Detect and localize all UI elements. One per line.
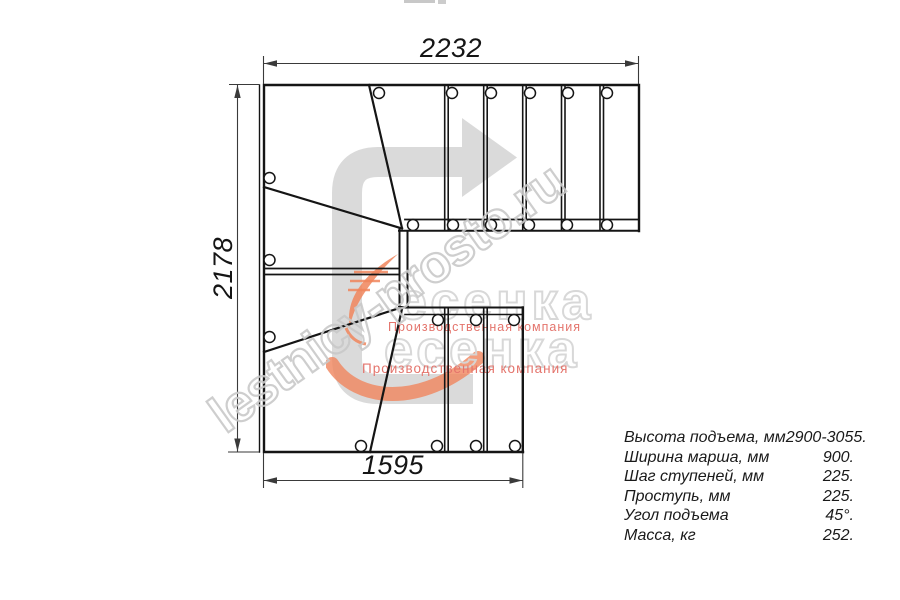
spec-label: Масса, кг	[624, 526, 696, 546]
spec-value: 900.	[823, 448, 854, 468]
spec-value: 225.	[823, 467, 854, 487]
staircase-drawing-page: есенка Производственная компания есенка …	[0, 0, 900, 600]
spec-row: Масса, кг 252.	[624, 526, 854, 546]
spec-value: 2900-3055.	[786, 428, 867, 448]
spec-value: 252.	[823, 526, 854, 546]
spec-row: Проступь, мм 225.	[624, 487, 854, 507]
spec-value: 225.	[823, 487, 854, 507]
spec-row: Ширина марша, мм 900.	[624, 448, 854, 468]
spec-row: Шаг ступеней, мм 225.	[624, 467, 854, 487]
spec-row: Высота подъема, мм 2900-3055.	[624, 428, 854, 448]
spec-label: Высота подъема, мм	[624, 428, 786, 448]
dimension-label-left: 2178	[208, 208, 238, 328]
spec-label: Шаг ступеней, мм	[624, 467, 764, 487]
spec-label: Ширина марша, мм	[624, 448, 769, 468]
spec-value: 45°.	[825, 506, 854, 526]
dimension-label-top: 2232	[351, 33, 551, 63]
spec-table: Высота подъема, мм 2900-3055. Ширина мар…	[624, 428, 854, 545]
spec-row: Угол подъема 45°.	[624, 506, 854, 526]
spec-label: Угол подъема	[624, 506, 729, 526]
dimension-label-bottom: 1595	[293, 450, 493, 480]
spec-label: Проступь, мм	[624, 487, 730, 507]
bottom-flight-treads	[399, 308, 523, 453]
